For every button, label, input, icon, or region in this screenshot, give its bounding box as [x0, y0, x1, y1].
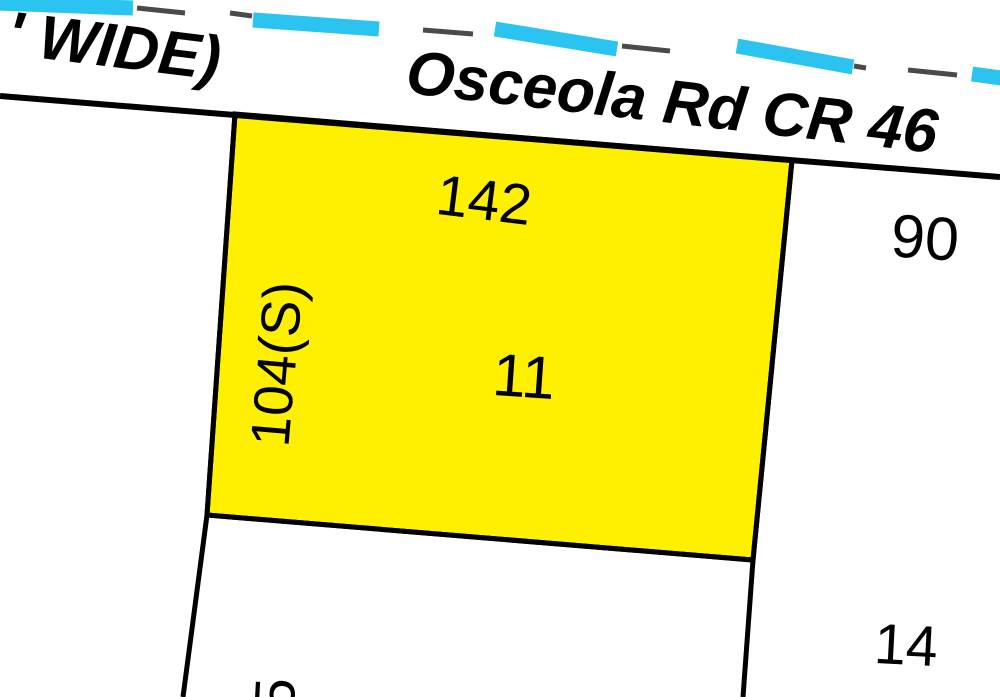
plat-map: ' WIDE)Osceola Rd CR 4614211104(S)90145 — [0, 0, 1000, 697]
label-dim-5: 5 — [247, 677, 306, 697]
map-labels: ' WIDE)Osceola Rd CR 4614211104(S)90145 — [0, 0, 1000, 697]
label-lot-14: 14 — [873, 616, 939, 676]
label-lot-90: 90 — [889, 205, 961, 271]
label-lot-11: 11 — [491, 345, 557, 409]
label-road-width-note: ' WIDE) — [4, 3, 224, 91]
label-dim-142: 142 — [433, 167, 534, 235]
label-dim-104s: 104(S) — [242, 279, 311, 448]
label-road-name: Osceola Rd CR 46 — [403, 42, 941, 164]
